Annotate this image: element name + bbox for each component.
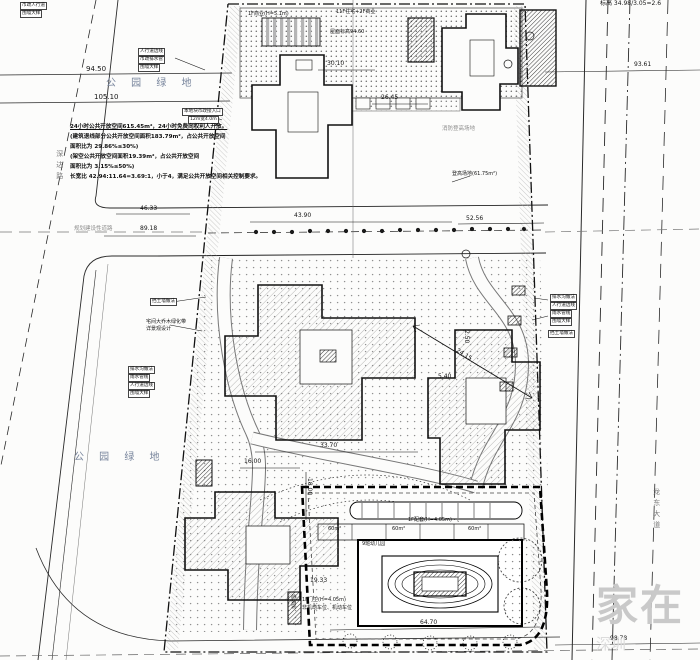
tag-right-4: 围墙大样 [550, 318, 572, 326]
dim-18-00: 18.00 [305, 478, 312, 495]
tag-drain-top: 市政排水管 [138, 56, 165, 64]
dim-105-10: 105.10 [94, 94, 119, 102]
tag-topleft-1: 市政人行道 [20, 2, 47, 10]
park-label-left: 公 园 绿 地 [74, 452, 166, 463]
kindergarten [288, 487, 547, 650]
dim-5-40: 5.40 [438, 374, 451, 381]
trash-room: 垃圾房 [290, 594, 296, 609]
fire-access-2: 登高场地(61.75m²) [452, 172, 497, 178]
fire-access-1: 消防登高场地 [442, 126, 475, 132]
tag-left-3: 人行道边线 [128, 382, 155, 390]
note-line-3: 面积比为 29.86%≤30%) [70, 142, 250, 152]
note-line-6: 长宽比 42.94:11.64=3.69:1，小于4，满足公共开放空间相关控制要… [70, 172, 250, 182]
dim-16-00: 16.00 [244, 459, 261, 466]
note-line-4: (架空公共开放空间面积19.39m²，占公共开放空间 [70, 152, 250, 162]
dim-93-61: 93.61 [634, 62, 651, 69]
road-name-left: 深达路 [55, 150, 63, 183]
note-line-2: (建筑退线部分公共开放空间面积183.79m²，占公共开放空间 [70, 132, 250, 142]
tag-right-2: 人行道边线 [550, 302, 577, 310]
tag-right-1: 排水沟做法 [550, 294, 577, 302]
kindergarten-gate: 1F门卫(H=4.05m) [302, 598, 346, 604]
tag-topleft-2: 围墙大样 [20, 10, 42, 18]
dim-43-90: 43.90 [294, 213, 311, 220]
dim-64-70: 64.70 [420, 620, 437, 627]
activity-area-2: 60m² [392, 527, 405, 533]
dim-19-33: 19.33 [310, 578, 327, 585]
activity-area-3: 60m² [468, 527, 481, 533]
podium-label-3: 屋面标高94.60 [330, 30, 364, 36]
dim-30-10: 30.10 [327, 61, 344, 68]
road-name-right: 龙东大道 [652, 488, 660, 532]
tag-left-2: 雨水管线 [128, 374, 150, 382]
site-plan: 94.50105.10公 园 绿 地公 园 绿 地深达路龙东大道标高 34.98… [0, 0, 700, 660]
tag-left-4: 围墙大样 [128, 390, 150, 398]
tag-access-1: 本地块市政接入口 [182, 108, 223, 116]
dim-46-33: 46.33 [140, 206, 157, 213]
dim-2-50: 2.50 [462, 330, 469, 343]
dim-94-50: 94.50 [86, 66, 106, 74]
tag-wall-top: 围墙大样 [138, 64, 160, 72]
green-belt-1: 宅间大乔木绿化带 [146, 320, 186, 326]
tag-left-1: 排水沟做法 [128, 366, 155, 374]
note-line-5: 面积比为 3.15%≤50%) [70, 162, 250, 172]
road-type-label: 规划建设性道路 [74, 226, 113, 232]
kindergarten-annex: 1F配套(H=4.05m) [408, 518, 452, 524]
dim-89-18: 89.18 [140, 226, 157, 233]
retaining-wall-right: 挡土墙做法 [548, 330, 575, 338]
retaining-wall-left: 挡土墙做法 [150, 298, 177, 306]
tag-right-3: 雨水管线 [550, 310, 572, 318]
podium-label-1: 1F商业(H=5.1m) [248, 12, 289, 18]
green-belt-2: 详景观设计 [146, 327, 171, 333]
note-line-1: 24小时公共开放空间615.45m²，24小时免费向权利人开放。 [70, 122, 250, 132]
dim-98-78: 98.78 [610, 636, 627, 643]
park-label-top: 公 园 绿 地 [106, 78, 198, 89]
elev-ratio: 标高 34.98/3.05=2.6 [600, 1, 661, 8]
activity-area-1: 60m² [328, 527, 341, 533]
kindergarten-parking: 非机动车位、机动车位 [302, 606, 352, 612]
podium-label-2: 11F住宅+2F商业 [336, 10, 376, 16]
kindergarten-name: 9班幼儿园 [362, 542, 385, 548]
note-block: 24小时公共开放空间615.45m²，24小时免费向权利人开放。(建筑退线部分公… [70, 122, 250, 182]
dim-26-45: 26.45 [381, 95, 398, 102]
tag-sidewalk-top: 人行道边线 [138, 48, 165, 56]
dim-52-56: 52.56 [466, 216, 483, 223]
dim-33-70: 33.70 [320, 443, 337, 450]
